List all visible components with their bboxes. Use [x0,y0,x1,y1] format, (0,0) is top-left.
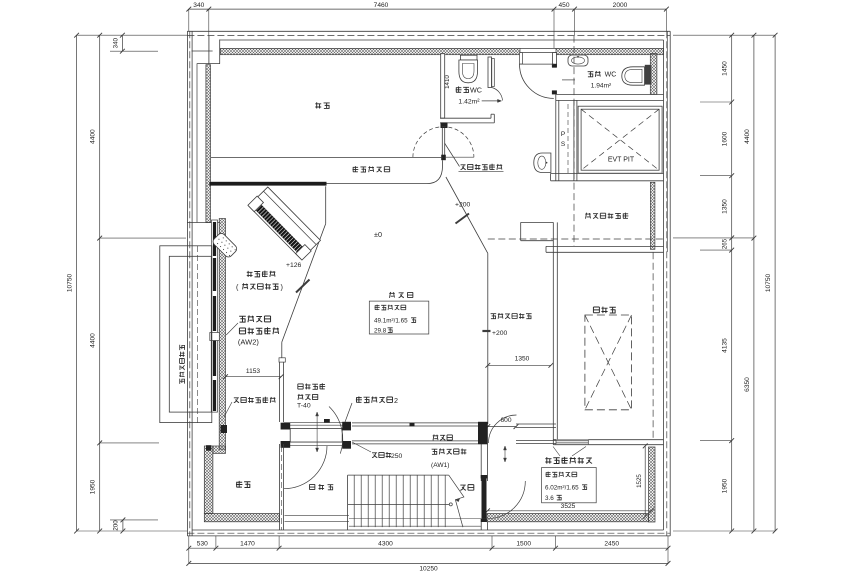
svg-text:2450: 2450 [604,541,619,548]
svg-text:+200: +200 [492,330,508,337]
svg-text:4135: 4135 [722,338,729,353]
svg-text:1500: 1500 [516,541,531,548]
svg-text:1470: 1470 [240,541,255,548]
svg-text:1410: 1410 [444,75,451,89]
svg-text:10750: 10750 [67,274,74,293]
svg-text:EVT PIT: EVT PIT [608,157,635,164]
svg-text:+126: +126 [286,262,302,269]
svg-text:WC: WC [605,72,617,79]
svg-text:6350: 6350 [744,377,751,392]
svg-text:200: 200 [113,520,120,531]
svg-text:340: 340 [113,37,120,48]
svg-text:4400: 4400 [90,333,97,348]
svg-text:+200: +200 [455,202,471,209]
svg-text:6.02m²/1.65: 6.02m²/1.65 [545,485,579,492]
svg-text:1350: 1350 [722,199,729,214]
svg-text:7460: 7460 [374,2,389,9]
svg-text:4300: 4300 [378,541,393,548]
svg-text:3525: 3525 [561,503,576,510]
svg-text:10750: 10750 [765,274,772,293]
svg-text:(AW2): (AW2) [238,338,259,347]
svg-text:2: 2 [394,396,398,405]
svg-text:T-40: T-40 [297,403,311,410]
svg-text:4400: 4400 [90,129,97,144]
svg-text:250: 250 [391,453,403,460]
svg-text:1950: 1950 [90,479,97,494]
svg-text:265: 265 [722,238,729,249]
svg-text:): ) [281,283,283,292]
svg-text:1450: 1450 [722,61,729,76]
svg-text:3.6: 3.6 [545,495,554,502]
svg-text:1525: 1525 [636,474,643,488]
svg-text:1600: 1600 [722,131,729,146]
svg-text:1350: 1350 [515,356,530,363]
svg-text:450: 450 [558,2,569,9]
svg-text:29.8: 29.8 [374,328,387,335]
svg-text:WC: WC [470,85,482,94]
svg-text:530: 530 [197,541,208,548]
svg-text:±0: ±0 [374,230,382,239]
svg-text:2000: 2000 [613,2,628,9]
svg-text:1950: 1950 [722,478,729,493]
svg-text:(AW1): (AW1) [431,462,449,469]
svg-text:4400: 4400 [744,129,751,144]
svg-text:S: S [561,141,566,148]
svg-text:49.1m²/1.65: 49.1m²/1.65 [374,318,408,325]
svg-text:1153: 1153 [246,368,261,375]
svg-text:600: 600 [500,417,511,424]
svg-text:10250: 10250 [419,566,438,571]
svg-text:1.94m²: 1.94m² [591,83,612,90]
svg-text:P: P [561,131,565,138]
svg-text:340: 340 [193,2,204,9]
svg-text:1.42m²: 1.42m² [458,99,480,106]
